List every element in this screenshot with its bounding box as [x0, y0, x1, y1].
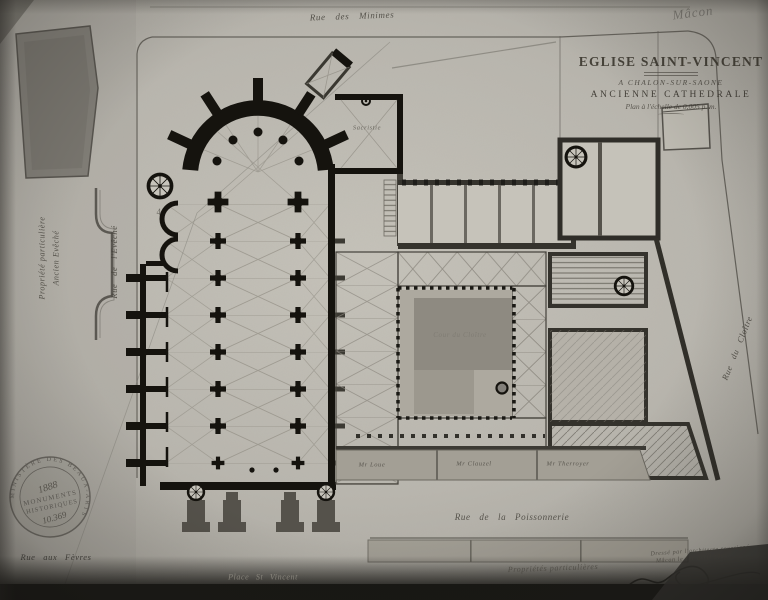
property-left-line1: Propriété particulière	[36, 216, 50, 299]
scanned-plan-sheet: MINISTÈRE DES BEAUX-ARTS 1888 MONUMENTS …	[0, 0, 768, 600]
title-line3: ANCIENNE CATHEDRALE	[575, 90, 767, 100]
well-icon	[497, 383, 508, 394]
place-st-vincent-label: Place St Vincent	[228, 573, 298, 582]
property-left-label: Propriété particulière Ancien Evêché	[36, 216, 65, 299]
title-line4: Plan à l'échelle de 0,005 p. m.	[575, 102, 767, 111]
street-fevres: Rue aux Fèvres	[21, 552, 92, 562]
sacristie-label: Sacristie	[353, 125, 381, 132]
title-rule	[644, 72, 698, 76]
owner-label: Mr Loue	[359, 462, 386, 469]
title-line2: A CHALON-SUR-SAONE	[575, 78, 767, 87]
street-eveche: Rue de l'Evêché	[109, 225, 119, 298]
spiral-stair-icon	[148, 174, 171, 197]
pencil-numeral: 4	[156, 207, 161, 217]
street-poissonnerie: Rue de la Poissonnerie	[455, 512, 569, 522]
owner-label: Mr Clauzel	[456, 461, 491, 468]
owner-label: Mr Therroyer	[547, 461, 590, 468]
title-block: EGLISE SAINT-VINCENT A CHALON-SUR-SAONE …	[575, 54, 767, 116]
courtyard-label: Cour du Cloître	[433, 331, 486, 339]
property-left-line2: Ancien Evêché	[50, 216, 64, 299]
title-flourish	[658, 113, 684, 116]
title-line1: EGLISE SAINT-VINCENT	[575, 54, 767, 70]
